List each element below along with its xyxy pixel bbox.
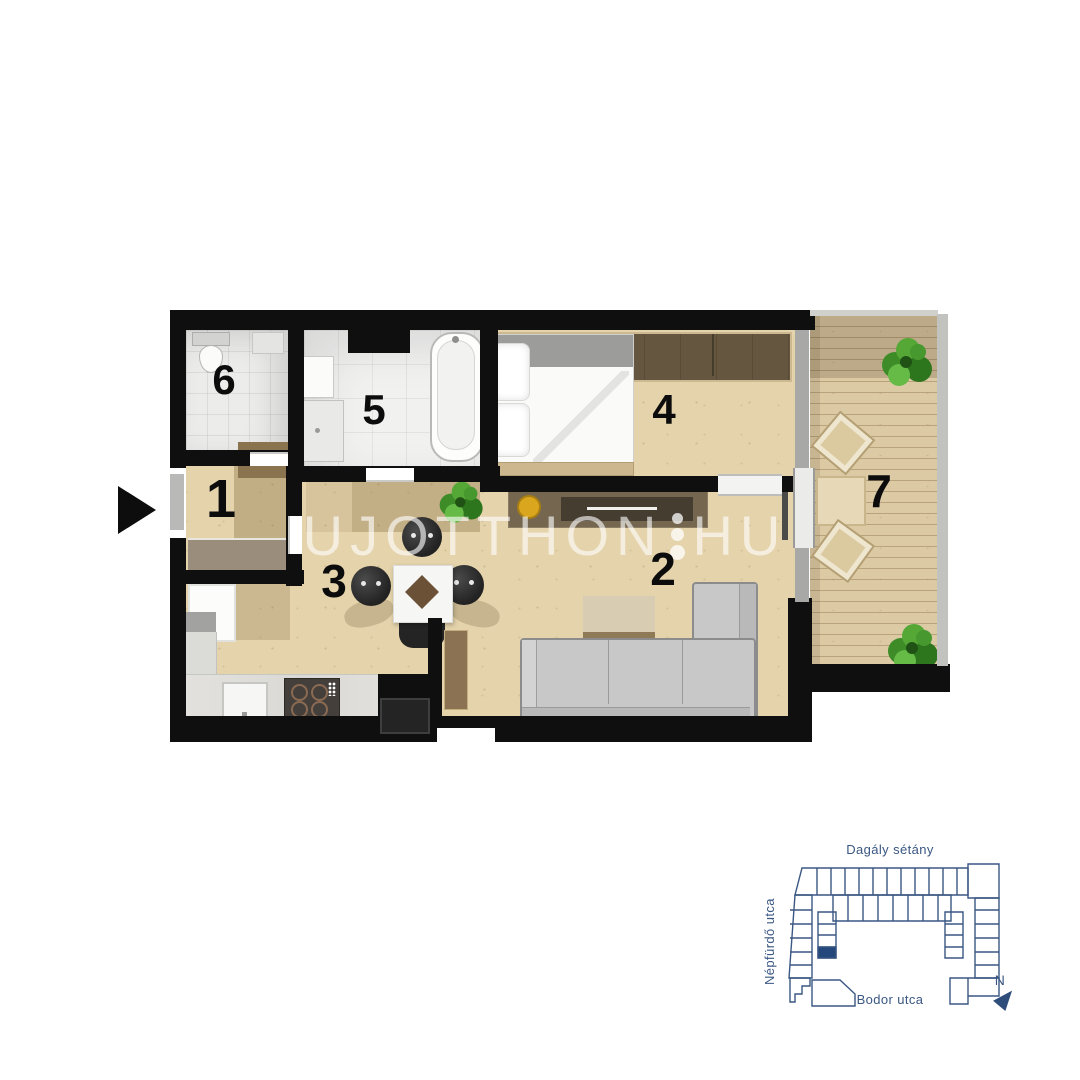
sideboard-handle <box>587 507 657 510</box>
decor-bowl <box>517 495 541 519</box>
sofa-main-section <box>520 638 756 728</box>
bathtub-faucet <box>452 336 459 343</box>
sofa-seam-2 <box>682 640 683 704</box>
bath-door-opening <box>366 468 414 482</box>
kitchen-counter-bottom <box>186 674 378 719</box>
entry-door-leaf <box>170 474 184 530</box>
north-arrow-icon <box>993 985 1018 1011</box>
burner-1 <box>291 684 308 701</box>
sofa-seam-1 <box>608 640 609 704</box>
bathtub-inner <box>437 340 475 450</box>
wall-bottom-notch <box>437 728 495 742</box>
bedroom-door-stub <box>782 492 788 540</box>
wardrobe-divider <box>712 334 714 376</box>
room-label-1: 1 <box>206 472 236 526</box>
entry-rug <box>188 538 302 572</box>
entrance-arrow-icon <box>118 486 156 534</box>
toilet-tank <box>192 332 230 346</box>
terrace-plant-top <box>880 336 936 392</box>
compass-label: N <box>995 972 1006 988</box>
stove-dots <box>328 682 336 696</box>
bathtub <box>430 332 484 462</box>
wc-basin <box>252 332 284 354</box>
bath-shaft <box>348 327 410 353</box>
corridor-cabinet <box>444 630 468 710</box>
wall-terrace-bottom <box>788 664 950 692</box>
site-map-svg: Dagály sétány Népfürdő utca Bodor utca N <box>762 838 1030 1016</box>
kitchen-sink <box>222 682 268 718</box>
dining-chair-top <box>402 517 442 557</box>
room-label-6: 6 <box>212 359 235 401</box>
burner-2 <box>311 684 328 701</box>
room-label-3: 3 <box>321 558 347 604</box>
bedroom-sliding-door <box>718 474 782 496</box>
wall-bedroom-bottom <box>480 476 720 492</box>
room-label-4: 4 <box>652 389 675 431</box>
counter-cap <box>186 612 216 634</box>
wall-bath-bedroom <box>480 310 498 492</box>
terrace-railing-top <box>810 310 938 316</box>
bed-frame-foot <box>486 462 634 476</box>
entry-hall-door-opening <box>288 516 302 554</box>
room-label-5: 5 <box>362 389 385 431</box>
highlighted-unit <box>818 947 836 958</box>
wall-corridor-stub <box>428 618 442 718</box>
room-label-2: 2 <box>650 546 676 592</box>
glass-wall-terrace <box>795 330 809 602</box>
living-rug-top <box>583 596 655 632</box>
dining-chair-left <box>351 566 391 606</box>
floorplan-page: { "floor_plan": { "rooms": [ {"number": … <box>0 0 1080 1080</box>
terrace-table <box>816 476 866 526</box>
wall-below-entry <box>170 570 304 584</box>
site-map: Dagály sétány Népfürdő utca Bodor utca N <box>762 838 1030 1016</box>
street-label-top: Dagály sétány <box>846 842 934 857</box>
bed <box>486 334 634 472</box>
kitchen-window <box>380 698 430 734</box>
stove <box>284 678 340 720</box>
wc-door-opening <box>250 452 288 466</box>
bed-duvet-fold <box>533 371 629 467</box>
terrace-sliding-door <box>793 468 815 548</box>
kitchen-plant <box>438 480 486 528</box>
shower-drain <box>315 428 320 433</box>
kitchen-floor-patch <box>232 584 290 640</box>
street-label-left: Népfürdő utca <box>762 898 777 985</box>
wall-wc-bath <box>288 310 304 466</box>
street-label-bottom: Bodor utca <box>857 992 924 1007</box>
room-label-7: 7 <box>866 468 892 514</box>
terrace-railing-right <box>937 314 948 666</box>
